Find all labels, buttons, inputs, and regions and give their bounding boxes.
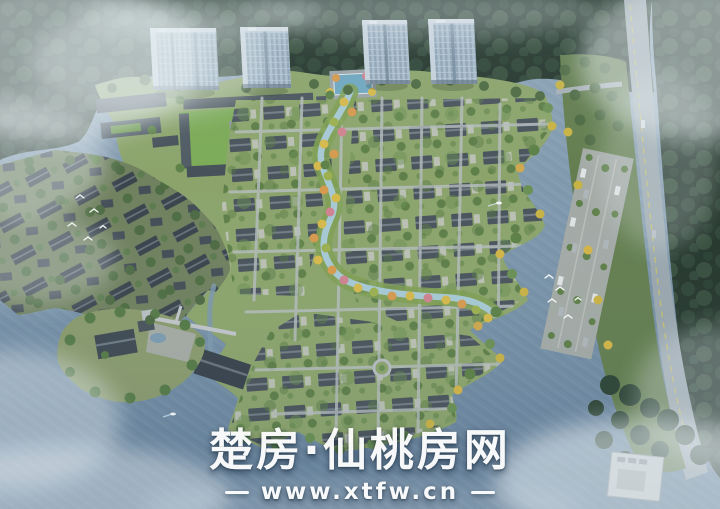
- aerial-rendering-image: 楚房·仙桃房网 www.xtfw.cn: [0, 0, 720, 509]
- site-aerial-view: [0, 0, 720, 509]
